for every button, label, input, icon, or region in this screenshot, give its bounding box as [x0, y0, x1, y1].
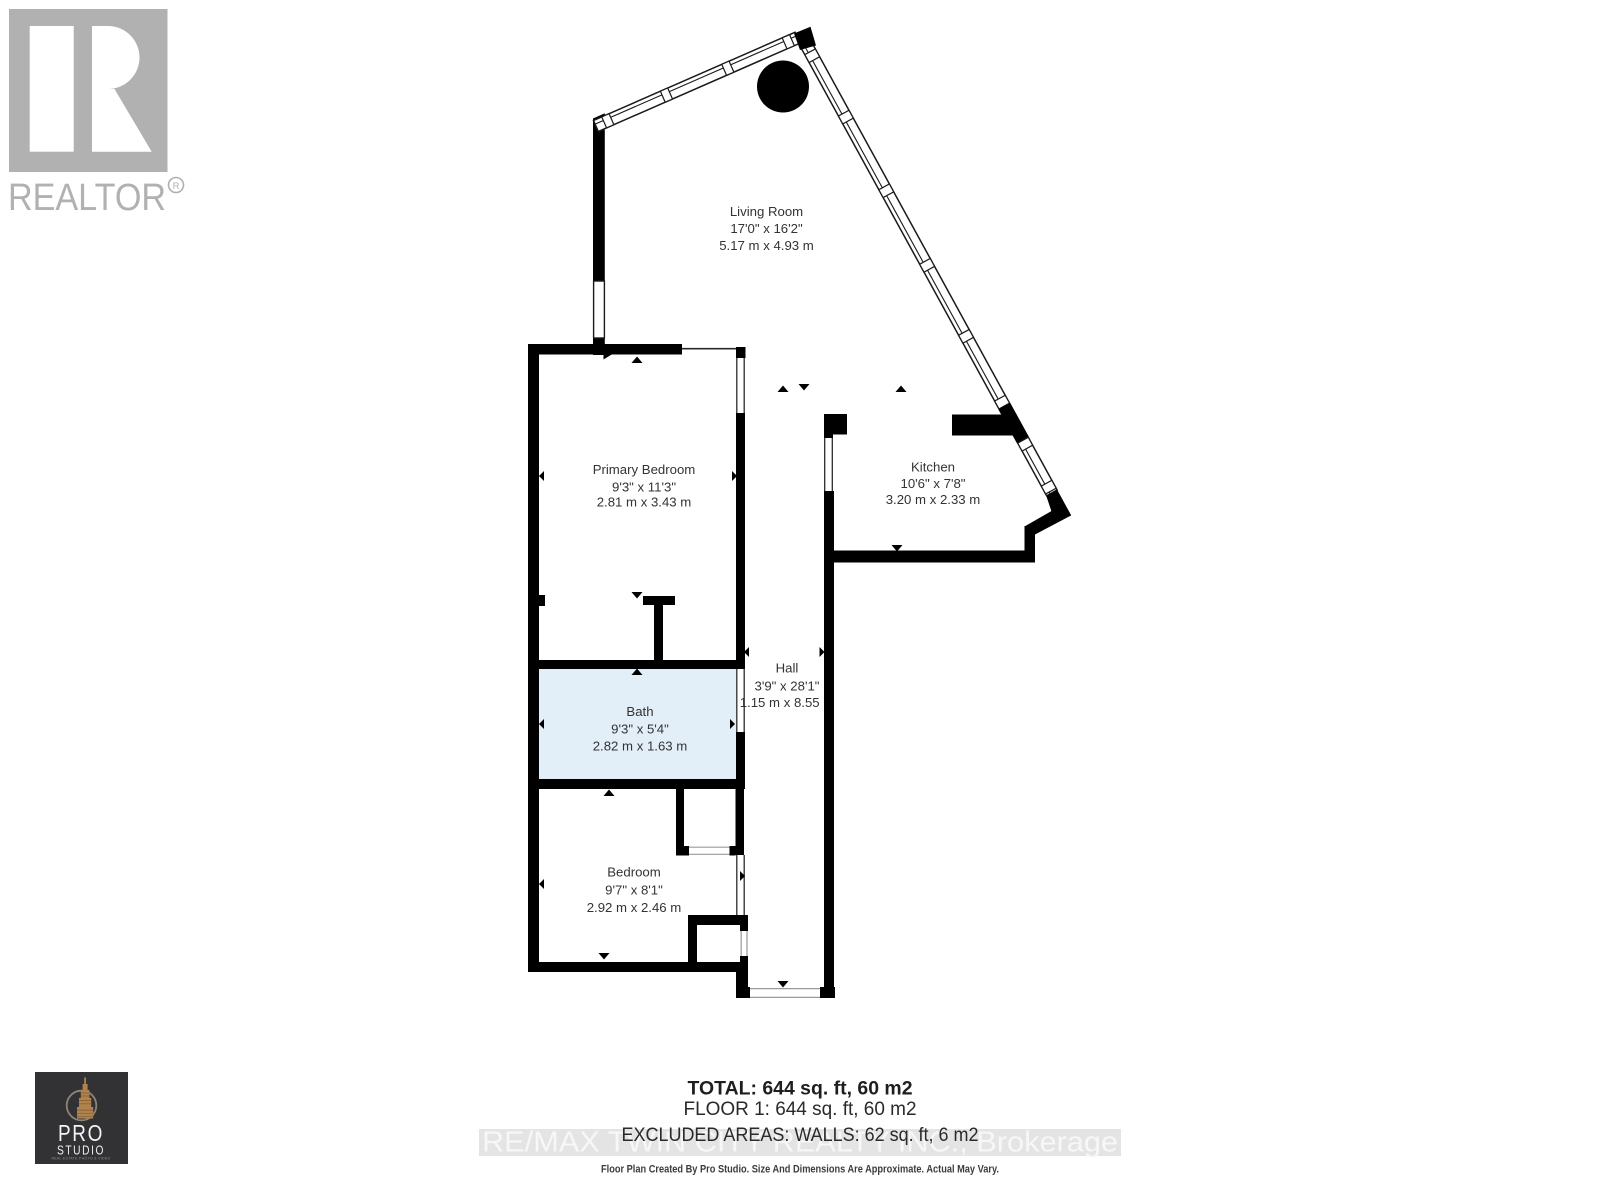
svg-text:FLOOR 1: 644 sq. ft, 60 m2: FLOOR 1: 644 sq. ft, 60 m2 [684, 1099, 917, 1120]
svg-text:Bedroom: Bedroom [607, 865, 661, 880]
svg-text:17'0" x 16'2": 17'0" x 16'2" [730, 221, 803, 236]
svg-text:5.17 m x 4.93 m: 5.17 m x 4.93 m [719, 238, 814, 253]
svg-text:EXCLUDED AREAS: WALLS: 62 sq.: EXCLUDED AREAS: WALLS: 62 sq. ft, 6 m2 [622, 1125, 979, 1146]
svg-text:REAL ESTATE PHOTO & VIDEO: REAL ESTATE PHOTO & VIDEO [51, 1157, 110, 1161]
svg-text:10'6" x 7'8": 10'6" x 7'8" [901, 476, 966, 491]
svg-text:Hall: Hall [776, 661, 799, 676]
svg-text:Kitchen: Kitchen [911, 460, 955, 475]
svg-text:3'9" x 28'1": 3'9" x 28'1" [755, 679, 820, 694]
svg-text:R: R [173, 181, 180, 192]
svg-text:TOTAL: 644 sq. ft, 60 m2: TOTAL: 644 sq. ft, 60 m2 [688, 1079, 913, 1100]
svg-text:REALTOR: REALTOR [8, 177, 166, 219]
svg-text:2.81 m x 3.43 m: 2.81 m x 3.43 m [597, 495, 692, 510]
svg-text:9'3" x 11'3": 9'3" x 11'3" [612, 480, 676, 495]
svg-text:9'7" x 8'1": 9'7" x 8'1" [605, 883, 663, 898]
svg-text:Living Room: Living Room [730, 204, 803, 219]
svg-text:2.82 m x 1.63 m: 2.82 m x 1.63 m [593, 739, 688, 754]
svg-text:1.15 m x 8.55 m: 1.15 m x 8.55 m [740, 695, 835, 710]
svg-text:9'3" x 5'4": 9'3" x 5'4" [611, 722, 669, 737]
svg-text:3.20 m x 2.33 m: 3.20 m x 2.33 m [886, 492, 981, 507]
svg-text:Bath: Bath [626, 704, 653, 719]
svg-text:Primary Bedroom: Primary Bedroom [593, 462, 696, 477]
svg-text:STUDIO: STUDIO [57, 1143, 105, 1158]
svg-text:2.92 m x 2.46 m: 2.92 m x 2.46 m [587, 900, 682, 915]
svg-text:Floor Plan Created By Pro Stud: Floor Plan Created By Pro Studio. Size A… [601, 1164, 999, 1176]
